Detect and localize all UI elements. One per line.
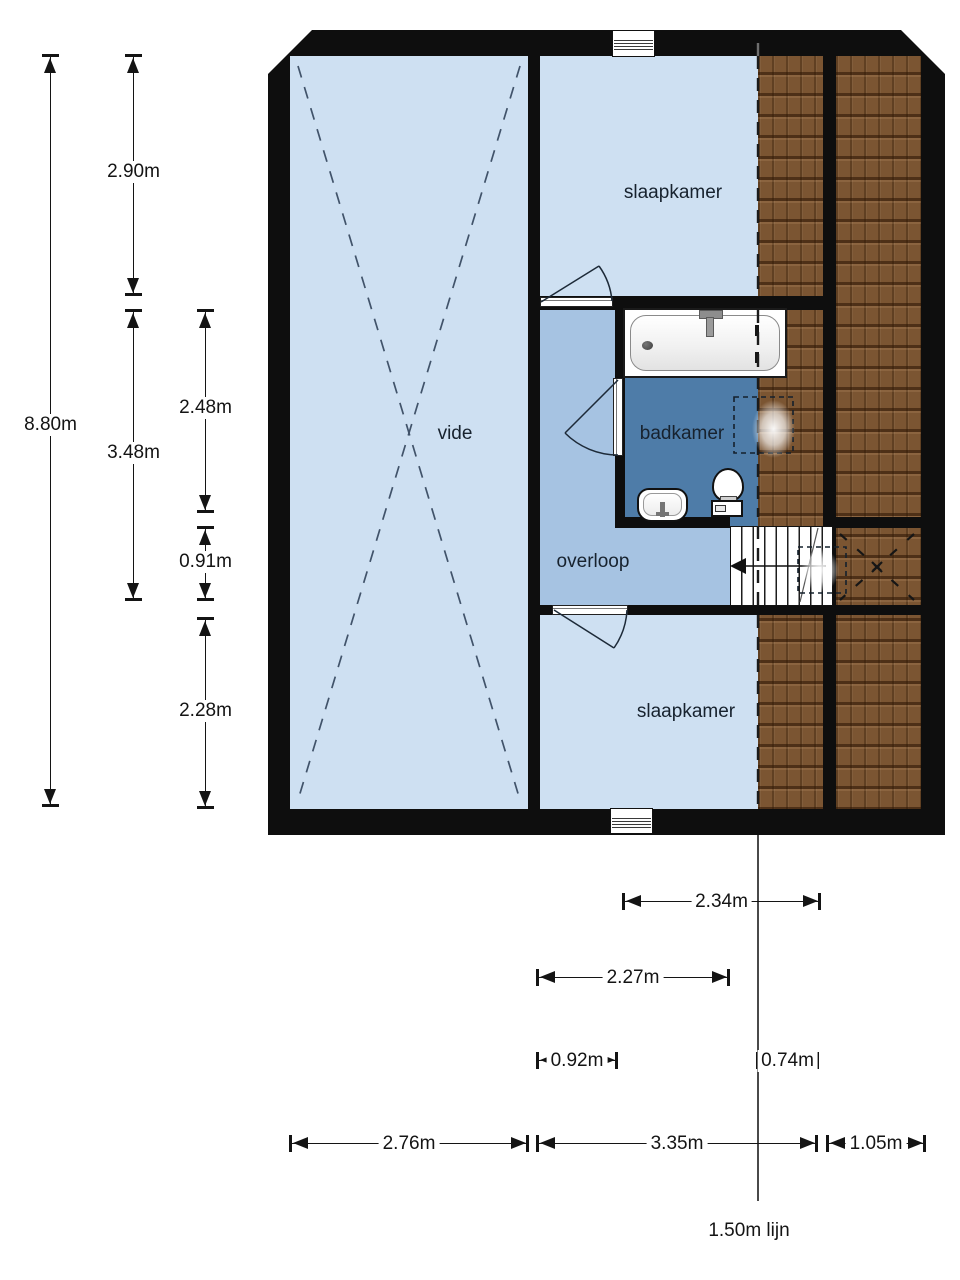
door-bathroom (613, 378, 623, 456)
dim-1-05: 1.05m (827, 1135, 925, 1152)
dim-2-34: 2.34m (623, 893, 820, 910)
dim-2-27: 2.27m (537, 969, 729, 986)
window-bottom (610, 808, 653, 834)
toilet-flush-button (715, 505, 726, 512)
bathtub-faucet-stem-icon (706, 317, 714, 337)
window-top (612, 30, 655, 57)
floorplan-canvas: vide slaapkamer badkamer overloop slaapk… (0, 0, 960, 1280)
dim-total-height: 8.80m (42, 55, 59, 806)
door-bedroom-top (540, 297, 613, 307)
skylight-bathroom-glow (752, 400, 795, 458)
dim-3-48: 3.48m (125, 310, 142, 600)
label-vide: vide (438, 423, 473, 445)
bathtub-drain-icon (642, 341, 653, 350)
wall-attic-top (830, 517, 921, 528)
wall-roof-divider-bottom (823, 610, 836, 835)
label-bedroom-top: slaapkamer (624, 182, 722, 204)
height-line-label: 1.50m lijn (708, 1220, 789, 1242)
room-vide (290, 56, 528, 809)
wall-vide-divider (528, 30, 540, 835)
room-bedroom-top (540, 56, 758, 296)
floor-plan: vide slaapkamer badkamer overloop slaapk… (268, 30, 945, 835)
bathtub-grip-bottom (755, 352, 759, 363)
label-landing: overloop (557, 551, 630, 573)
door-bedroom-bottom (552, 605, 628, 615)
bathtub-grip-top (755, 325, 759, 336)
dim-2-90: 2.90m (125, 55, 142, 295)
dim-0-92: 0.92m (537, 1052, 617, 1069)
window-bottom-panes (612, 818, 651, 828)
skylight-stairs-glow (801, 548, 839, 592)
room-landing-bottom (615, 528, 730, 605)
wall-roof-divider-top (823, 30, 836, 526)
roof-strip-outer (836, 56, 921, 809)
dim-0-74: 0.74m (757, 1052, 818, 1069)
dim-0-91: 0.91m (197, 527, 214, 600)
window-top-panes (614, 40, 653, 50)
dim-2-28: 2.28m (197, 618, 214, 808)
dim-2-76: 2.76m (290, 1135, 528, 1152)
dim-2-48: 2.48m (197, 310, 214, 512)
label-bedroom-bottom: slaapkamer (637, 701, 735, 723)
dim-3-35: 3.35m (537, 1135, 817, 1152)
bathtub (623, 308, 787, 378)
label-bathroom: badkamer (640, 423, 725, 445)
sink-faucet-bar-icon (656, 512, 669, 516)
